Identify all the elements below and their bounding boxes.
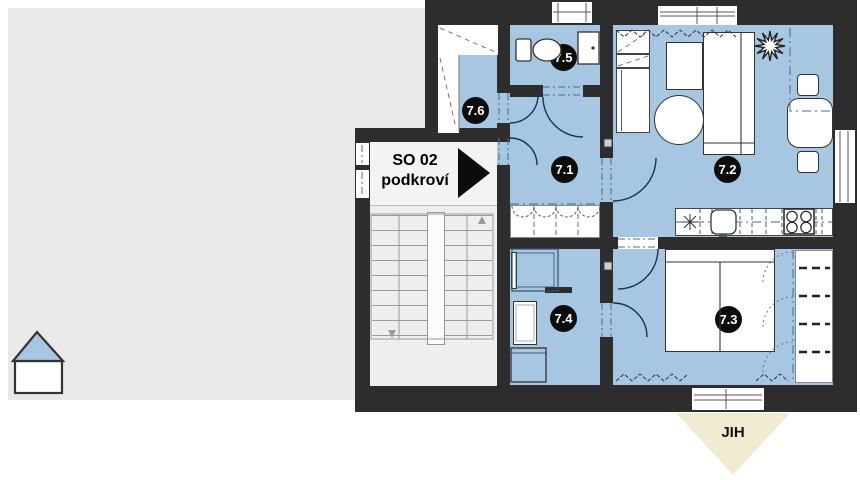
storage-low-ceiling-area — [438, 55, 459, 133]
window — [692, 388, 764, 410]
room-badge-7-6: 7.6 — [462, 97, 489, 124]
wall-segment — [600, 25, 613, 158]
washbasin — [513, 301, 537, 345]
south-direction-marker — [676, 413, 790, 475]
wall-segment — [833, 0, 857, 412]
wardrobe — [795, 250, 833, 383]
window — [356, 170, 369, 198]
wall-segment — [497, 123, 510, 138]
attic-roof-icon — [13, 332, 63, 361]
dining-table — [787, 98, 833, 148]
unit-code-label: SO 02 — [372, 151, 458, 171]
shower-door — [511, 252, 517, 289]
wall-segment — [600, 337, 613, 385]
cabinet — [616, 30, 650, 54]
sofa — [703, 32, 755, 155]
window — [658, 6, 737, 25]
room-badge-7-3: 7.3 — [715, 306, 742, 333]
wall-segment — [613, 237, 618, 249]
coffee-table — [654, 95, 704, 145]
room-badge-7-5: 7.5 — [550, 44, 577, 71]
bed — [665, 249, 775, 352]
window — [552, 2, 592, 23]
stair-flight-down — [372, 215, 427, 340]
window — [356, 143, 369, 165]
unit-label-box[interactable]: SO 02 podkroví — [370, 142, 497, 205]
unit-floor-label: podkroví — [372, 171, 458, 191]
tall-cabinet — [616, 68, 650, 133]
room-badge-7-4: 7.4 — [550, 305, 577, 332]
chair — [797, 74, 819, 96]
cabinet — [616, 54, 650, 68]
floorplan-canvas: SO 02 podkroví 7.1 7.2 7.3 7.4 7.5 7.6 J… — [0, 0, 860, 480]
window — [835, 130, 855, 203]
stair-flight-up — [441, 215, 492, 340]
room-badge-7-2: 7.2 — [714, 156, 741, 183]
wall-segment — [497, 25, 510, 93]
wall-segment — [510, 237, 600, 249]
wall-segment — [510, 85, 543, 97]
storage-low-ceiling-area — [438, 25, 498, 55]
hall-wardrobe — [510, 205, 600, 238]
chair — [797, 151, 819, 173]
sofa-chaise — [666, 42, 703, 90]
south-direction-label: JIH — [676, 424, 790, 441]
room-badge-7-1: 7.1 — [551, 156, 578, 183]
wall-segment — [355, 128, 510, 142]
wall-segment — [355, 385, 857, 412]
wall-segment — [425, 0, 857, 25]
wall-segment — [600, 202, 613, 303]
wall-segment — [658, 237, 833, 249]
stair-void — [427, 212, 445, 345]
wall-segment — [545, 287, 572, 293]
wall-segment — [497, 165, 510, 385]
kitchen-counter — [675, 208, 833, 236]
floor-indicator-house-icon[interactable] — [8, 326, 68, 398]
